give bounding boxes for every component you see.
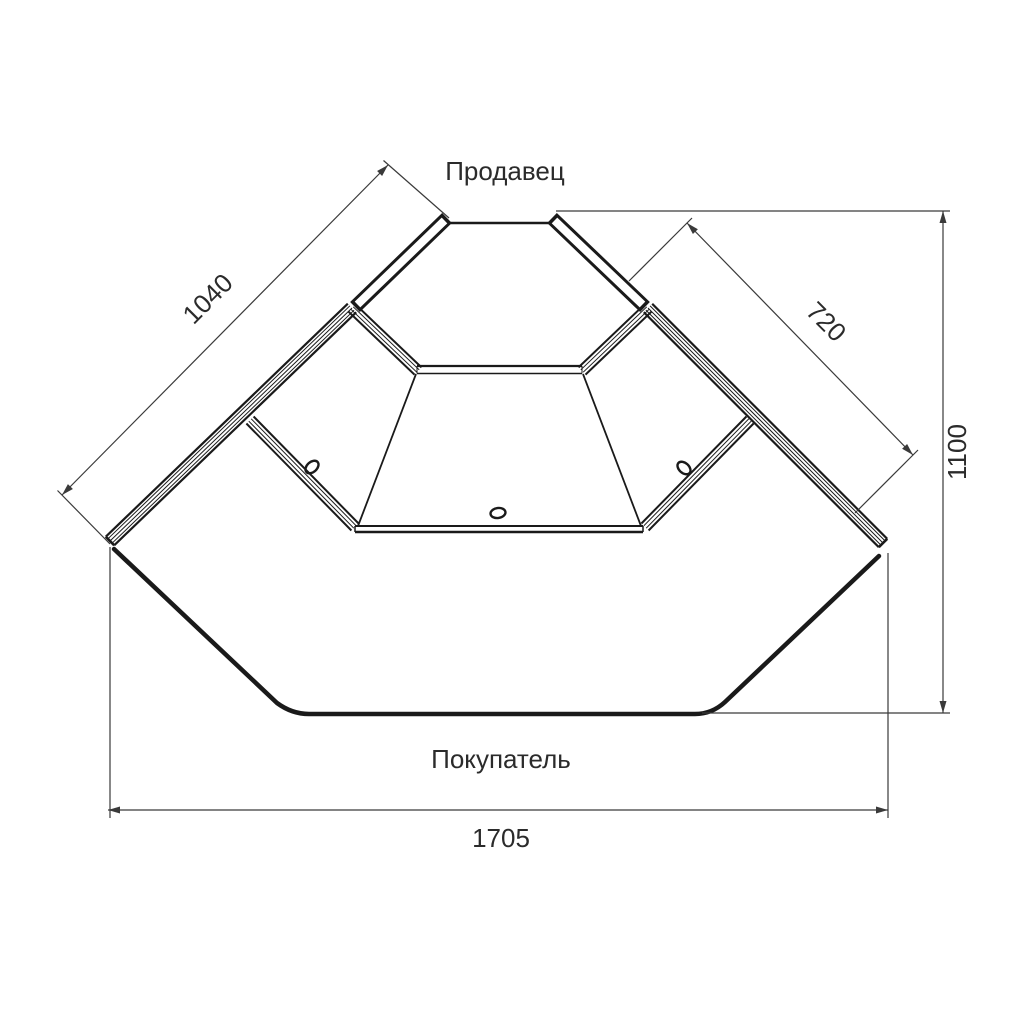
hole-left bbox=[303, 458, 321, 475]
end-panel-left-fill bbox=[358, 221, 445, 305]
corner-display-case-plan-drawing: 1040 720 1100 1705 Продавец Покупатель bbox=[0, 0, 1024, 1024]
dimension-right-glass: 720 bbox=[629, 218, 918, 513]
glass-band-line bbox=[644, 312, 879, 547]
deck-band-line bbox=[249, 421, 354, 528]
glass-band-line bbox=[106, 304, 348, 537]
extension-line bbox=[384, 161, 450, 219]
partition-band-right bbox=[579, 304, 652, 374]
dimension-overall-width: 1705 bbox=[108, 547, 888, 853]
partition-line bbox=[583, 309, 649, 372]
partition-line bbox=[356, 304, 422, 367]
partition-line bbox=[579, 304, 645, 367]
partition-line bbox=[349, 312, 415, 375]
glass-band-line bbox=[112, 310, 354, 543]
deck-band-line bbox=[644, 419, 749, 526]
dimension-arrow bbox=[876, 807, 888, 814]
glass-band-line bbox=[108, 306, 350, 539]
end-panel-right bbox=[552, 218, 645, 307]
partition-line bbox=[351, 309, 417, 372]
dimension-value-1040: 1040 bbox=[177, 268, 239, 330]
front-glass-edge bbox=[114, 549, 879, 714]
partition-line bbox=[586, 312, 652, 375]
glass-band-left bbox=[106, 304, 356, 546]
buyer-side-label: Покупатель bbox=[431, 744, 571, 774]
deck-band-line bbox=[649, 424, 754, 531]
well-top-edge bbox=[417, 366, 582, 374]
glass-band-line bbox=[650, 306, 885, 541]
glass-band-line bbox=[110, 308, 352, 541]
glass-band-line bbox=[114, 312, 356, 545]
partition-line bbox=[353, 307, 419, 370]
glass-band-line bbox=[652, 304, 887, 539]
hole-center bbox=[490, 507, 506, 519]
partition-line bbox=[581, 307, 647, 370]
dimension-value-720: 720 bbox=[800, 296, 852, 348]
well-side-left bbox=[358, 374, 416, 526]
glass-band-line bbox=[646, 310, 881, 545]
end-panel-right-fill bbox=[555, 221, 643, 305]
deck-front-band-left bbox=[246, 417, 358, 531]
deck-band-line bbox=[641, 417, 746, 524]
dimension-value-1100: 1100 bbox=[942, 424, 972, 480]
dimension-value-1705: 1705 bbox=[472, 823, 530, 853]
technical-drawing-page: 1040 720 1100 1705 Продавец Покупатель bbox=[0, 0, 1024, 1024]
deck-front-edge bbox=[355, 526, 643, 532]
deck-front-band-right bbox=[641, 417, 753, 531]
seller-side-label: Продавец bbox=[445, 156, 565, 186]
well-side-right bbox=[583, 374, 641, 526]
dimension-arrow bbox=[940, 701, 947, 713]
partition-band-left bbox=[349, 304, 422, 374]
end-panel-left bbox=[355, 218, 447, 307]
dimension-line bbox=[687, 223, 913, 455]
deck-band-line bbox=[251, 419, 356, 526]
deck-band-line bbox=[246, 424, 351, 531]
extension-line bbox=[58, 491, 111, 545]
extension-line bbox=[629, 218, 692, 281]
glass-band-right bbox=[644, 304, 887, 547]
display-deck bbox=[246, 304, 753, 532]
dimension-arrow bbox=[940, 211, 947, 223]
glass-band-line bbox=[648, 308, 883, 543]
extension-line bbox=[855, 450, 918, 513]
deck-band-line bbox=[646, 421, 751, 528]
